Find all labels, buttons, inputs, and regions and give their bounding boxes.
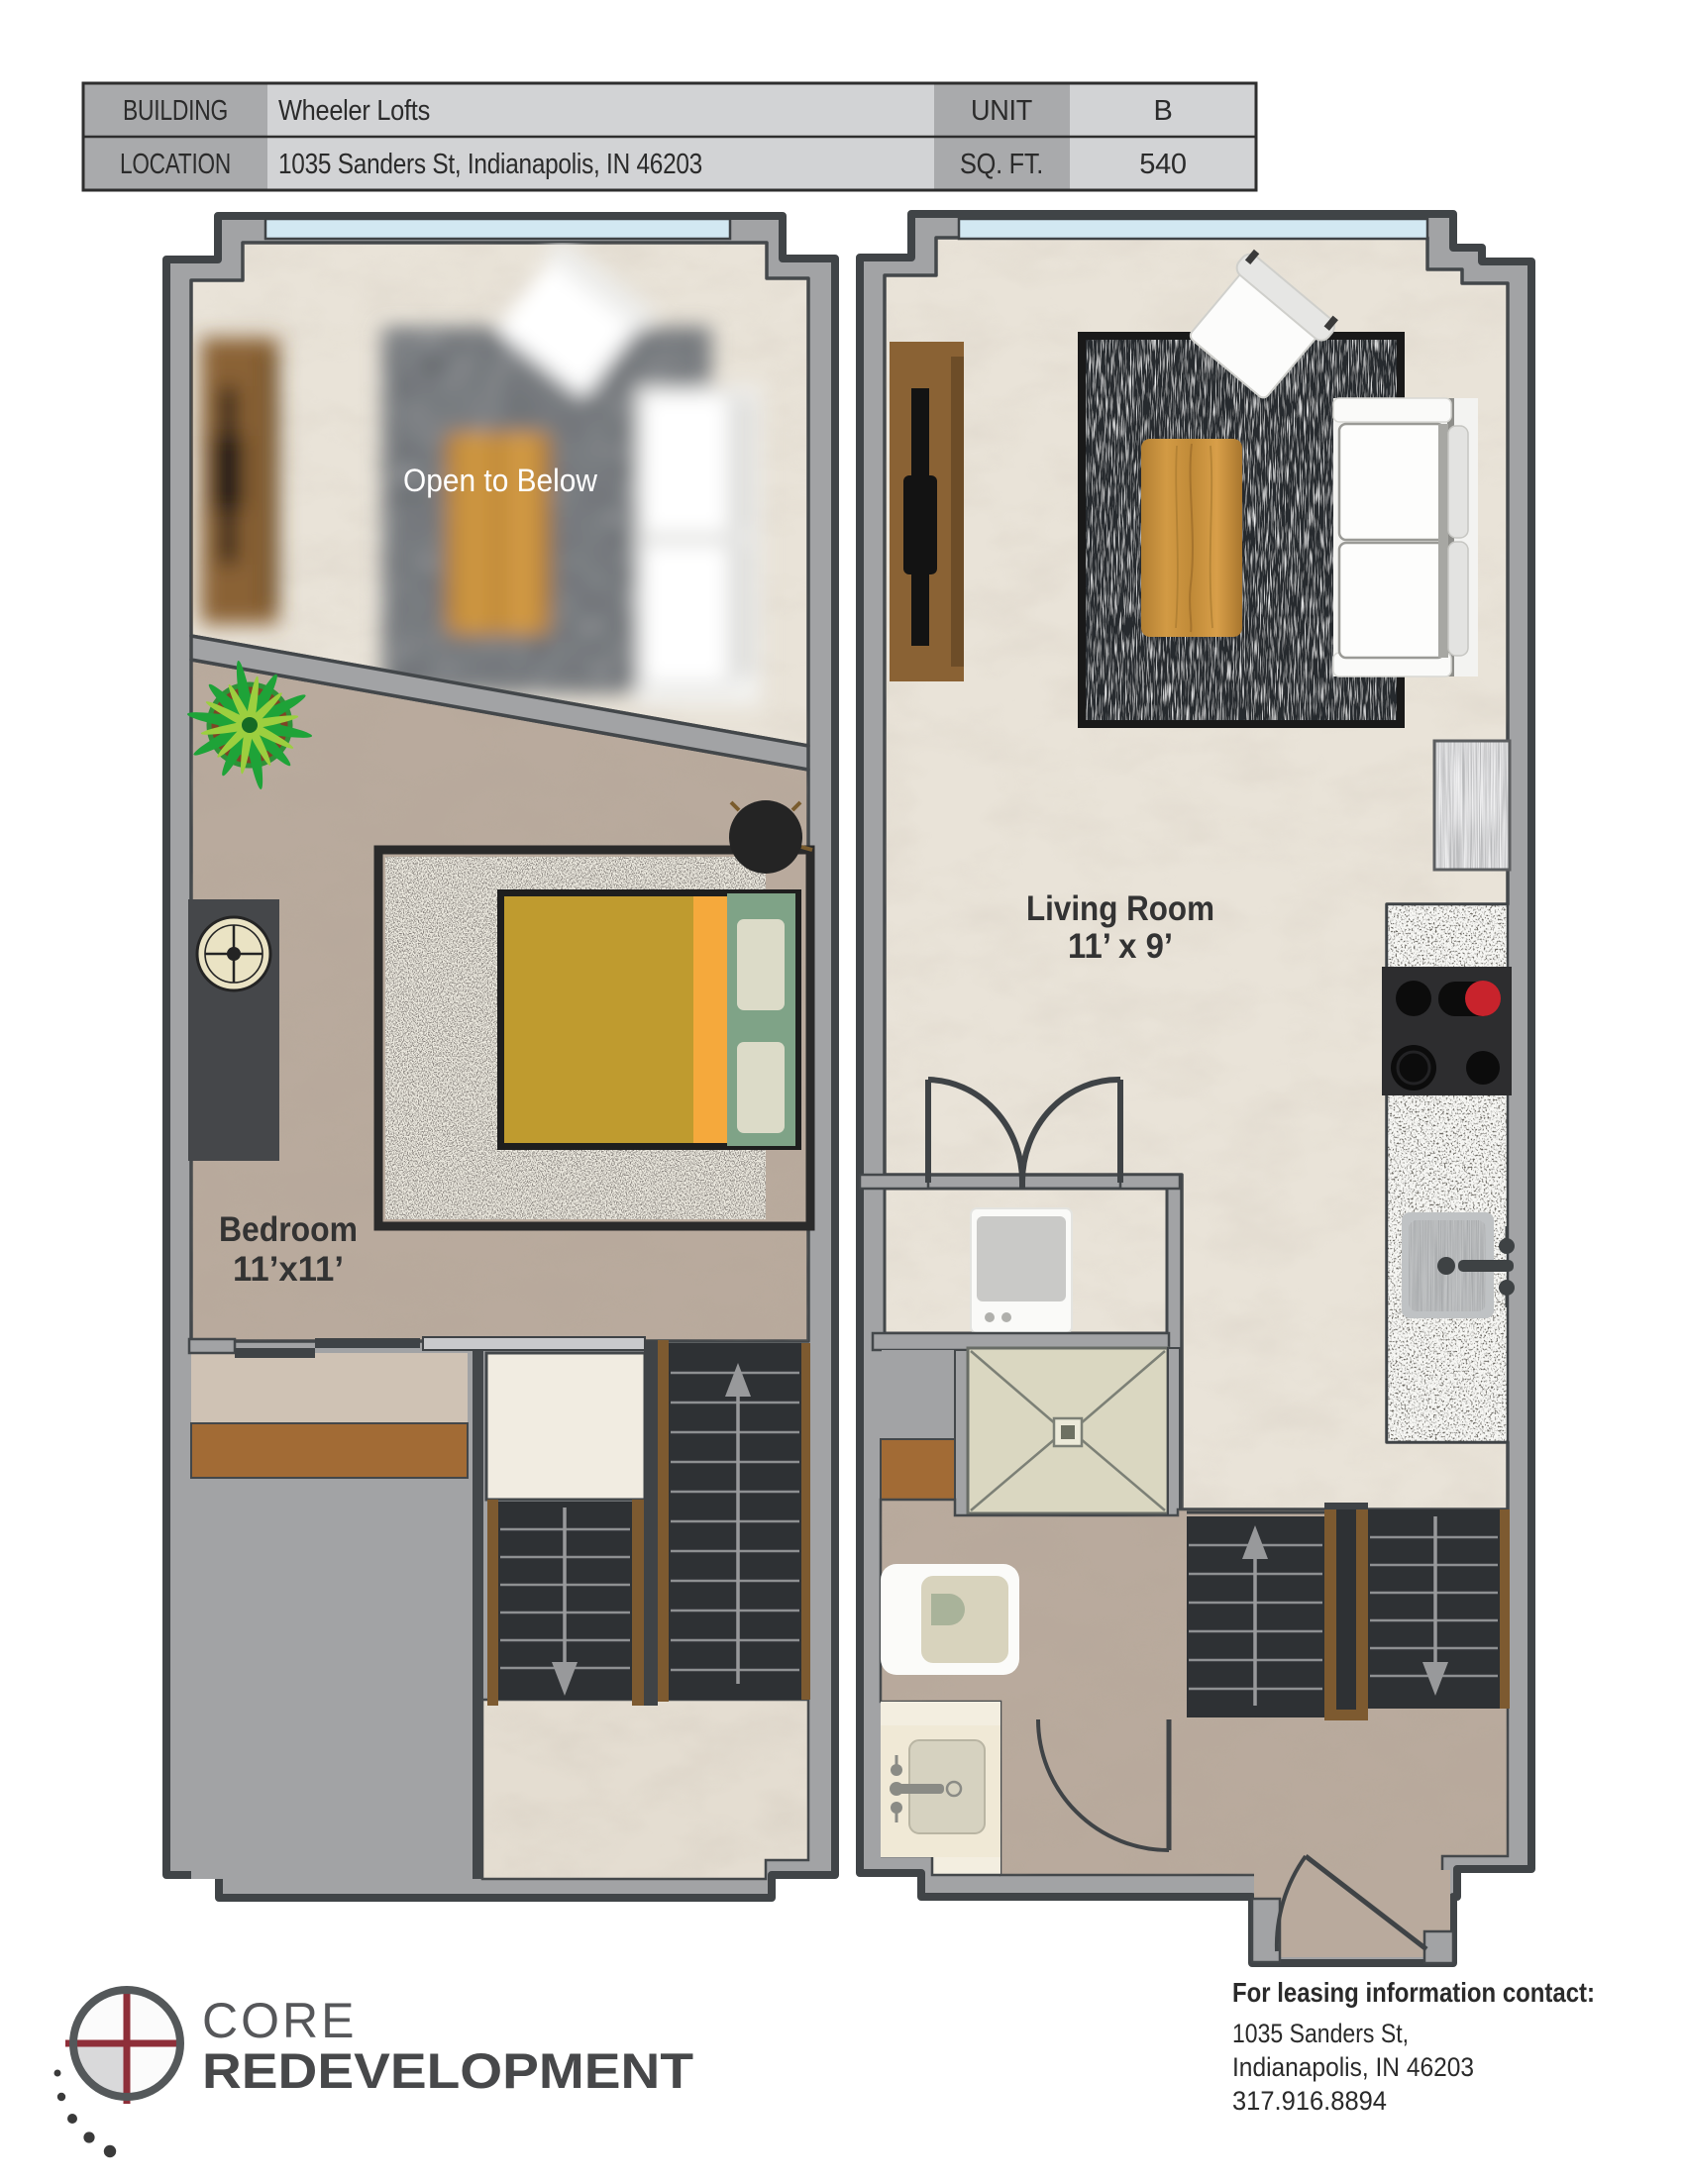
svg-text:Bedroom: Bedroom: [219, 1210, 358, 1249]
svg-text:CORE: CORE: [202, 1993, 357, 2048]
svg-text:317.916.8894: 317.916.8894: [1232, 2086, 1387, 2116]
svg-text:11’ x 9’: 11’ x 9’: [1068, 927, 1173, 966]
svg-text:Wheeler Lofts: Wheeler Lofts: [278, 95, 430, 127]
svg-text:Open to Below: Open to Below: [403, 463, 598, 498]
svg-text:1035 Sanders St, Indianapolis,: 1035 Sanders St, Indianapolis, IN 46203: [278, 149, 702, 180]
svg-text:540: 540: [1139, 149, 1187, 180]
svg-text:REDEVELOPMENT: REDEVELOPMENT: [202, 2043, 693, 2099]
svg-text:Indianapolis, IN 46203: Indianapolis, IN 46203: [1232, 2052, 1474, 2082]
svg-text:Living Room: Living Room: [1026, 889, 1214, 928]
svg-text:B: B: [1153, 95, 1172, 127]
svg-text:UNIT: UNIT: [971, 95, 1033, 127]
svg-text:BUILDING: BUILDING: [123, 95, 228, 127]
svg-text:LOCATION: LOCATION: [120, 149, 231, 180]
svg-text:SQ. FT.: SQ. FT.: [960, 149, 1043, 180]
svg-text:For leasing information contac: For leasing information contact:: [1232, 1977, 1595, 2008]
svg-text:11’x11’: 11’x11’: [233, 1250, 344, 1289]
svg-text:1035 Sanders St,: 1035 Sanders St,: [1232, 2019, 1409, 2048]
